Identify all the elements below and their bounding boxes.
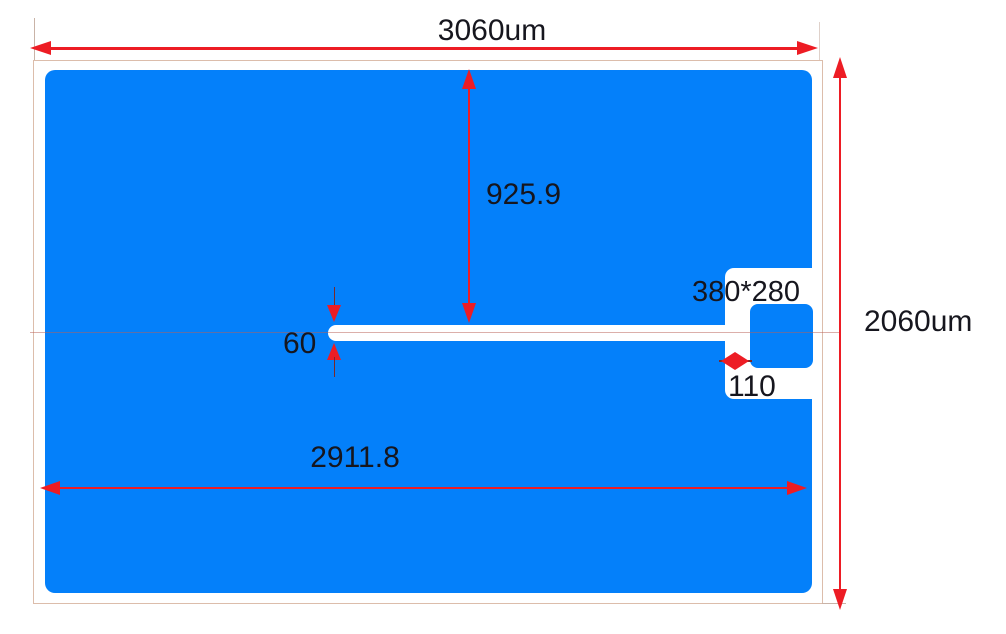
inset-dimension-label: 925.9 [486, 179, 561, 211]
arrowhead-down-icon [327, 305, 341, 322]
arrowhead-up-icon [833, 57, 847, 78]
arrowhead-down-icon [833, 589, 847, 610]
notch-island-pad [750, 304, 813, 368]
arrowhead-down-icon [462, 303, 476, 323]
slot-width-label: 60 [283, 328, 316, 360]
horizontal-centerline [30, 332, 840, 334]
gap-label: 110 [728, 371, 776, 403]
arrowhead-left-icon [30, 41, 51, 55]
width-dimension-label: 3060um [392, 15, 592, 47]
extension-line-top-right [819, 22, 820, 60]
lower-width-label: 2911.8 [255, 442, 455, 474]
feed-slot [328, 325, 730, 341]
arrowhead-right-icon [787, 481, 807, 495]
arrowhead-up-icon [462, 69, 476, 89]
arrowhead-left-icon [40, 481, 60, 495]
height-dimension-label: 2060um [864, 306, 972, 338]
diamond-left-icon [721, 352, 735, 370]
notch-size-label: 380*280 [692, 277, 800, 307]
layout-drawing-canvas: 3060um 2060um 925.9 2911.8 60 380*280 11… [0, 0, 1006, 634]
diamond-right-icon [735, 352, 749, 370]
arrowhead-right-icon [797, 41, 818, 55]
